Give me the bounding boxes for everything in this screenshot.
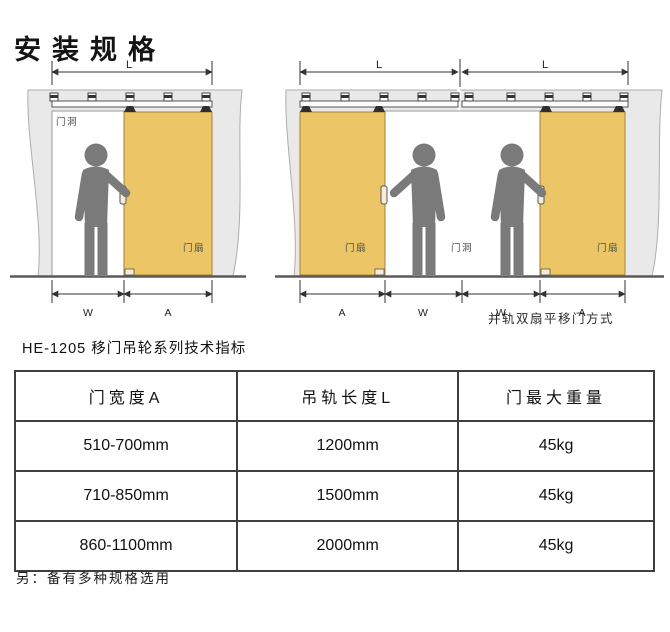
opening-label: 门洞 bbox=[56, 116, 78, 128]
table-cell: 45kg bbox=[458, 421, 654, 471]
table-cell: 1200mm bbox=[237, 421, 458, 471]
floor-guide-icon bbox=[375, 269, 384, 275]
opening-label: 门洞 bbox=[451, 242, 473, 254]
spec-table: 门宽度A 吊轨长度L 门最大重量 510-700mm 1200mm 45kg 7… bbox=[14, 370, 655, 572]
floor-guide-icon bbox=[541, 269, 550, 275]
dimension-bottom bbox=[52, 280, 212, 303]
table-header-max-weight: 门最大重量 bbox=[458, 371, 654, 421]
double-door-diagram: L L 门扇 bbox=[272, 55, 667, 335]
table-row: 510-700mm 1200mm 45kg bbox=[15, 421, 654, 471]
diagram-caption: 并轨双扇平移门方式 bbox=[488, 308, 614, 327]
table-cell: 860-1100mm bbox=[15, 521, 237, 571]
door-handle-icon bbox=[381, 186, 387, 204]
footnote: 另：备有多种规格选用 bbox=[16, 567, 171, 587]
table-title: HE-1205 移门吊轮系列技术指标 bbox=[22, 337, 246, 358]
table-cell: 2000mm bbox=[237, 521, 458, 571]
table-header-row: 门宽度A 吊轨长度L 门最大重量 bbox=[15, 371, 654, 421]
door-panel bbox=[300, 112, 385, 275]
door-label: 门扇 bbox=[345, 242, 367, 254]
bottom-dim-label: A bbox=[338, 307, 345, 319]
table-header-door-width: 门宽度A bbox=[15, 371, 237, 421]
opening-width-label: W bbox=[83, 307, 93, 319]
bottom-dim-label: W bbox=[418, 307, 428, 319]
door-label: 门扇 bbox=[597, 242, 619, 254]
dimension-track-length bbox=[300, 59, 628, 87]
table-row: 710-850mm 1500mm 45kg bbox=[15, 471, 654, 521]
spec-sheet: 安装规格 L 门洞 bbox=[0, 0, 670, 632]
table-header-track-length: 吊轨长度L bbox=[237, 371, 458, 421]
table-cell: 510-700mm bbox=[15, 421, 237, 471]
table-cell: 710-850mm bbox=[15, 471, 237, 521]
table-cell: 45kg bbox=[458, 471, 654, 521]
floor-guide-icon bbox=[125, 269, 134, 275]
table-cell: 45kg bbox=[458, 521, 654, 571]
track-length-label: L bbox=[376, 59, 382, 71]
table-cell: 1500mm bbox=[237, 471, 458, 521]
door-width-label: A bbox=[164, 307, 171, 319]
dimension-bottom bbox=[300, 280, 625, 303]
door-label: 门扇 bbox=[183, 242, 205, 254]
track-length-label: L bbox=[542, 59, 548, 71]
table-row: 860-1100mm 2000mm 45kg bbox=[15, 521, 654, 571]
track-length-label: L bbox=[126, 59, 132, 71]
single-door-diagram: L 门洞 门扇 bbox=[8, 55, 248, 335]
